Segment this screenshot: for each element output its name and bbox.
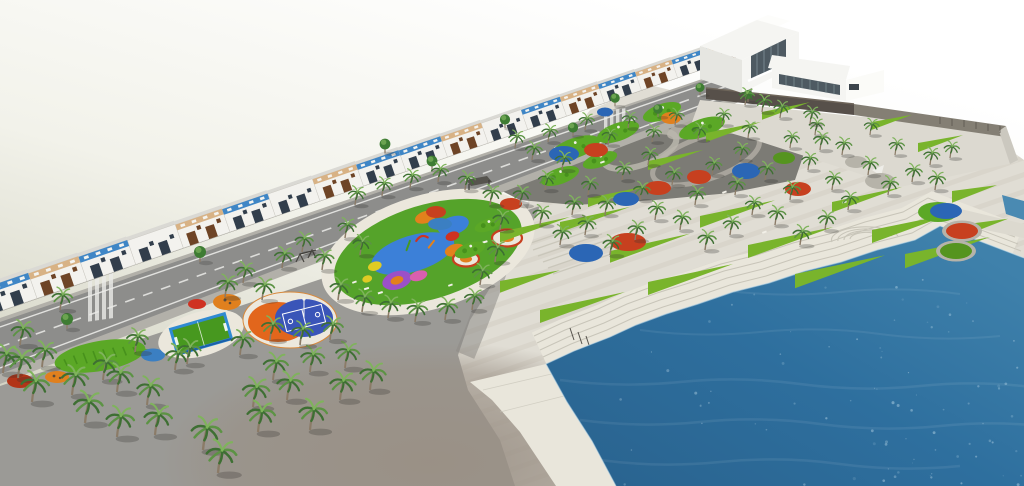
- water-sparkle: [916, 394, 917, 395]
- water-sparkle: [897, 404, 900, 407]
- water-sparkle: [850, 400, 852, 402]
- plaza-circle: [687, 170, 711, 184]
- water-sparkle: [694, 392, 697, 395]
- water-sparkle: [790, 331, 791, 332]
- water-sparkle: [975, 456, 977, 458]
- water-sparkle: [937, 305, 940, 308]
- water-sparkle: [897, 471, 900, 474]
- water-sparkle: [905, 438, 906, 439]
- water-sparkle: [908, 372, 909, 373]
- water-sparkle: [894, 319, 895, 320]
- water-sparkle: [989, 440, 992, 443]
- plaza-circle: [584, 143, 608, 157]
- water-sparkle: [856, 338, 858, 340]
- water-sparkle: [666, 369, 669, 372]
- scene-canvas: [0, 0, 1024, 486]
- water-sparkle: [977, 385, 979, 387]
- water-sparkle: [755, 423, 756, 424]
- water-sparkle: [902, 298, 904, 300]
- plaza-circle: [426, 206, 446, 218]
- water-sparkle: [1003, 475, 1004, 476]
- water-sparkle: [731, 304, 733, 306]
- colored-circle: [500, 198, 522, 210]
- water-sparkle: [992, 441, 994, 443]
- water-sparkle: [1020, 475, 1022, 477]
- plaza-circle: [597, 108, 613, 117]
- colored-circle: [428, 218, 452, 230]
- water-sparkle: [894, 475, 897, 478]
- colored-circle: [940, 243, 972, 259]
- water-sparkle: [871, 429, 874, 432]
- render-viewport: [0, 0, 1024, 486]
- colored-circle: [773, 152, 795, 164]
- water-sparkle: [931, 326, 933, 328]
- water-sparkle: [885, 440, 888, 443]
- water-sparkle: [891, 401, 894, 404]
- colored-circle: [597, 108, 613, 117]
- water-sparkle: [879, 347, 881, 349]
- water-sparkle: [935, 449, 937, 451]
- water-sparkle: [708, 402, 710, 404]
- plaza-circle: [773, 152, 795, 164]
- plaza-circle: [942, 221, 982, 242]
- water-sparkle: [1011, 415, 1014, 418]
- water-sparkle: [881, 351, 882, 352]
- signage-panel: [849, 84, 859, 90]
- colored-circle: [426, 206, 446, 218]
- water-sparkle: [700, 404, 701, 405]
- water-sparkle: [910, 409, 913, 412]
- water-sparkle: [824, 286, 826, 288]
- water-sparkle: [930, 475, 931, 476]
- water-sparkle: [913, 459, 915, 461]
- water-sparkle: [922, 279, 924, 281]
- water-sparkle: [1016, 367, 1018, 369]
- plaza-circle: [500, 198, 522, 210]
- water-sparkle: [927, 321, 929, 323]
- water-sparkle: [710, 391, 711, 392]
- water-sparkle: [708, 320, 711, 323]
- water-sparkle: [948, 331, 950, 333]
- colored-circle: [584, 143, 608, 157]
- water-sparkle: [968, 402, 970, 404]
- water-sparkle: [873, 442, 876, 445]
- water-sparkle: [782, 362, 785, 365]
- water-sparkle: [912, 462, 913, 463]
- water-sparkle: [828, 346, 830, 348]
- water-sparkle: [960, 482, 962, 484]
- water-sparkle: [943, 409, 945, 411]
- water-sparkle: [1004, 382, 1007, 385]
- water-sparkle: [982, 423, 984, 425]
- water-sparkle: [895, 286, 898, 289]
- water-sparkle: [853, 477, 856, 480]
- water-sparkle: [933, 431, 936, 434]
- water-sparkle: [972, 320, 974, 322]
- water-sparkle: [874, 388, 875, 389]
- water-sparkle: [631, 449, 633, 451]
- water-sparkle: [1013, 340, 1015, 342]
- water-sparkle: [969, 443, 971, 445]
- water-sparkle: [956, 455, 959, 458]
- water-sparkle: [997, 385, 1000, 388]
- colored-circle: [687, 170, 711, 184]
- water-sparkle: [880, 357, 882, 359]
- water-sparkle: [825, 417, 827, 419]
- water-sparkle: [949, 313, 952, 316]
- basketball-court-circle: [243, 292, 337, 348]
- water-sparkle: [888, 468, 889, 469]
- water-sparkle: [998, 387, 1000, 389]
- plaza-circle: [428, 218, 452, 230]
- water-sparkle: [780, 353, 782, 355]
- water-sparkle: [701, 423, 703, 425]
- water-sparkle: [1015, 450, 1017, 452]
- water-sparkle: [753, 294, 755, 296]
- colored-circle: [946, 223, 978, 239]
- water-sparkle: [885, 443, 888, 446]
- activity-circle: [188, 299, 206, 309]
- plaza-circle: [613, 192, 639, 206]
- water-sparkle: [651, 351, 652, 352]
- water-sparkle: [931, 473, 932, 474]
- water-sparkle: [623, 483, 625, 485]
- water-sparkle: [793, 402, 795, 404]
- plaza-circle: [936, 241, 976, 262]
- water-sparkle: [966, 302, 967, 303]
- water-sparkle: [876, 388, 877, 389]
- colored-circle: [732, 163, 760, 179]
- water-sparkle: [619, 398, 622, 401]
- plaza-circle: [732, 163, 760, 179]
- water-sparkle: [882, 479, 885, 482]
- colored-circle: [930, 203, 962, 219]
- colored-circle: [613, 192, 639, 206]
- water-sparkle: [766, 429, 768, 431]
- water-sparkle: [930, 476, 932, 478]
